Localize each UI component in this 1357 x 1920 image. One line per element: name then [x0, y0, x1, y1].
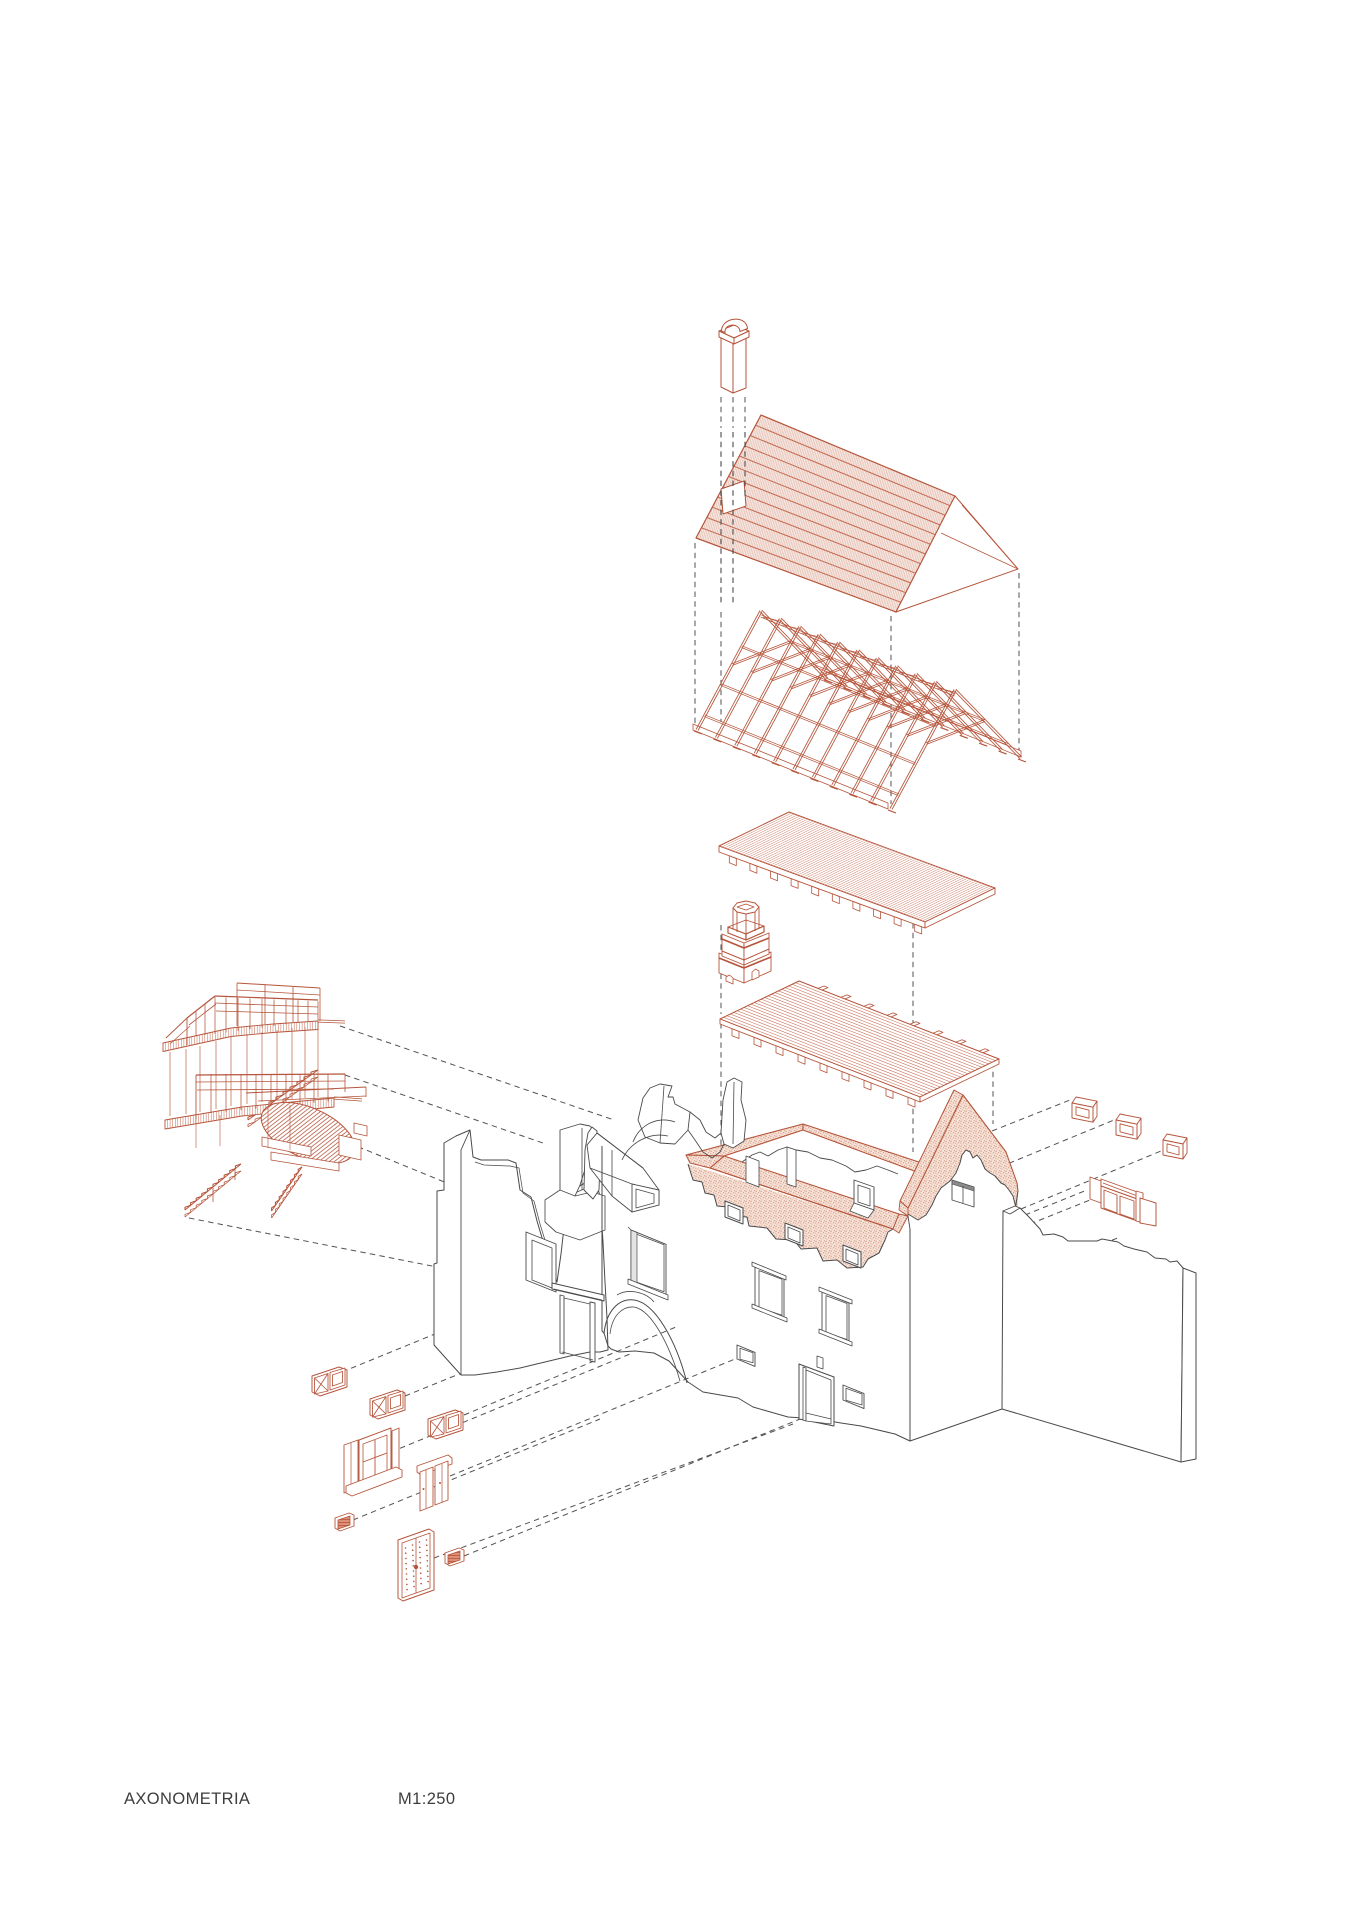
- svg-text:AXONOMETRIA: AXONOMETRIA: [124, 1790, 250, 1808]
- svg-text:M1:250: M1:250: [398, 1790, 455, 1808]
